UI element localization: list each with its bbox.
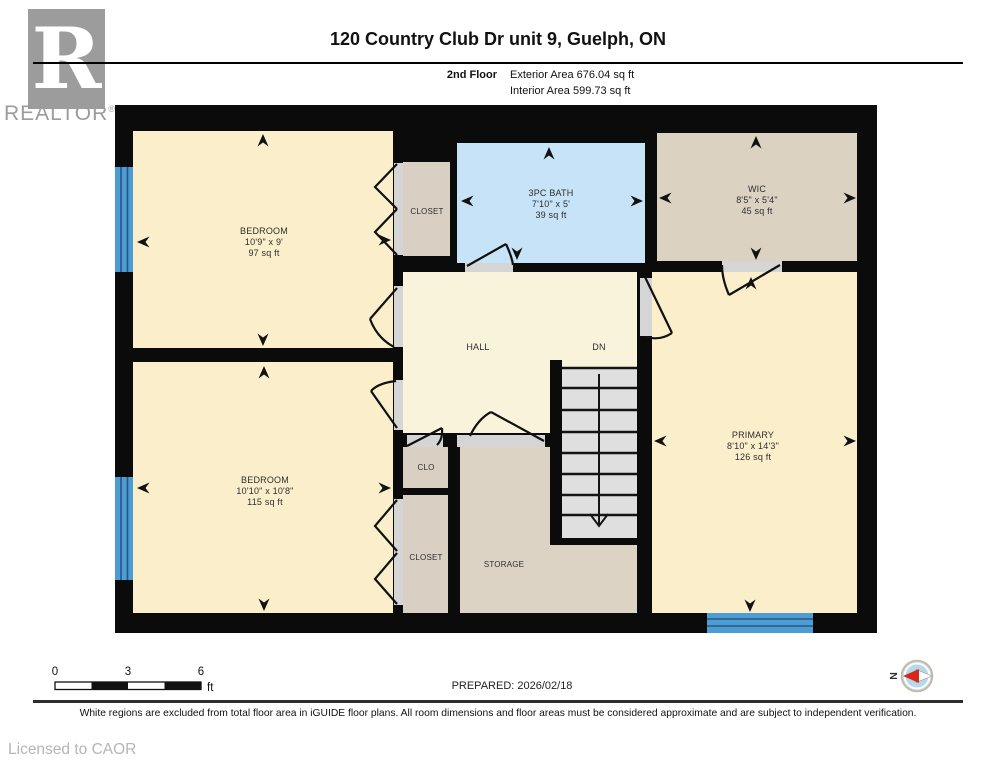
bedroom2-dims: 10'10" x 10'8" [236,486,293,496]
wic-area: 45 sq ft [741,206,772,216]
bath-dims: 7'10" x 5' [532,199,570,209]
scale-tick-0: 0 [52,666,58,678]
staircase [562,368,637,538]
scale-tick-3: 3 [125,666,131,678]
closet-top-name: CLOSET [410,207,443,216]
floor-plan: BEDROOM 10'9" x 9' 97 sq ft CLOSET 3PC B… [0,0,993,768]
bedroom2-area: 115 sq ft [247,497,283,507]
bath-name: 3PC BATH [529,188,574,198]
disclaimer-text: White regions are excluded from total fl… [33,708,963,719]
primary-area: 126 sq ft [735,452,772,462]
prepared-date: PREPARED: 2026/02/18 [47,680,977,692]
bedroom1-area: 97 sq ft [248,248,279,258]
wic-name: WIC [748,184,766,194]
bath-area: 39 sq ft [535,210,566,220]
window-primary [707,613,813,633]
scale-tick-6: 6 [198,666,204,678]
footer-divider [33,700,963,703]
license-text: Licensed to CAOR [8,741,136,759]
closet-bottom-name: CLOSET [409,553,442,562]
hall-name: HALL [466,342,489,352]
bedroom1-dims: 10'9" x 9' [245,237,283,247]
bedroom2-name: BEDROOM [241,475,289,485]
compass-n-label: N [888,672,900,680]
storage-name: STORAGE [484,560,524,569]
stairs-dn-label: DN [592,342,605,352]
window-bedroom2 [115,477,133,580]
stair-wall-left [550,360,562,543]
clo-name: CLO [417,463,434,472]
primary-dims: 8'10" x 14'3" [727,441,779,451]
wic-dims: 8'5" x 5'4" [736,195,778,205]
bedroom1-name: BEDROOM [240,226,288,236]
primary-name: PRIMARY [732,430,774,440]
window-bedroom1 [115,167,133,272]
stair-wall-bottom [550,538,637,545]
